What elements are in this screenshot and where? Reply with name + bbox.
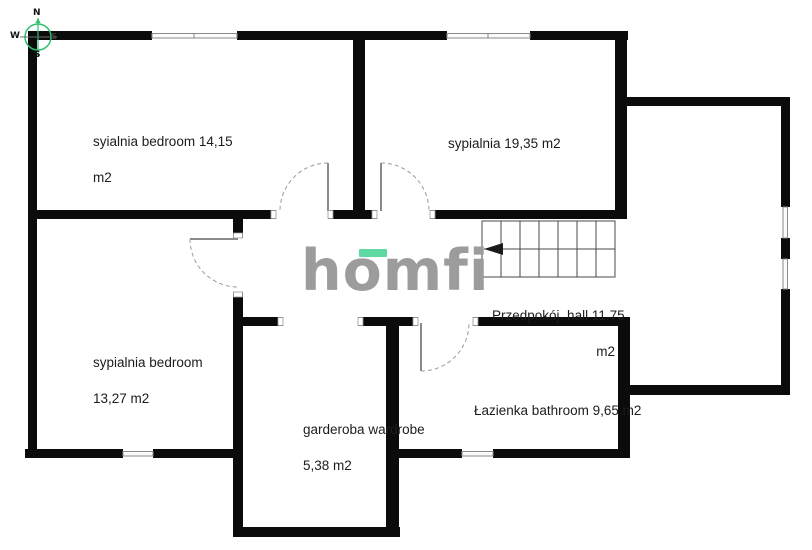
logo-text-post: mfi bbox=[383, 238, 490, 304]
room-area: m2 bbox=[93, 170, 112, 185]
door-jamb bbox=[234, 292, 243, 297]
wall bbox=[233, 292, 243, 537]
floor-plan: N S W E homfi syialnia bedroom 14,15 m2 … bbox=[0, 0, 812, 550]
room-name: sypialnia bedroom bbox=[93, 355, 203, 370]
wall bbox=[28, 31, 37, 458]
room-area: m2 bbox=[477, 343, 615, 361]
compass-east-label: E bbox=[51, 32, 56, 41]
window bbox=[447, 31, 530, 40]
wall bbox=[781, 238, 790, 259]
window bbox=[781, 259, 790, 289]
logo-text-pre: h bbox=[301, 238, 343, 304]
wall bbox=[781, 97, 790, 207]
window bbox=[462, 449, 493, 458]
door-top-left-bedroom bbox=[280, 163, 328, 211]
homfi-logo: homfi bbox=[301, 240, 501, 306]
wall bbox=[530, 31, 628, 40]
door-bathroom bbox=[421, 323, 469, 371]
stairs bbox=[482, 221, 615, 277]
room-name: Łazienka bathroom 9,65 m2 bbox=[474, 403, 641, 418]
room-label-bedroom-bottom: sypialnia bedroom 13,27 m2 bbox=[78, 336, 203, 426]
room-label-hall: Przedpokój hall 11,75 m2 bbox=[477, 289, 615, 397]
room-name: Przedpokój hall 11,75 bbox=[492, 308, 625, 323]
logo-accent-letter: o bbox=[343, 238, 383, 304]
door-bottom-bedroom bbox=[190, 239, 238, 287]
room-name: sypialnia 19,35 m2 bbox=[448, 136, 561, 151]
door-jamb bbox=[372, 211, 377, 219]
door-jamb bbox=[271, 211, 276, 219]
door-jamb bbox=[234, 233, 243, 238]
wall bbox=[237, 31, 447, 40]
room-label-bedroom-top-mid: sypialnia 19,35 m2 bbox=[433, 117, 561, 171]
wall bbox=[25, 449, 123, 458]
room-label-bedroom-top-left: syialnia bedroom 14,15 m2 bbox=[78, 115, 233, 205]
room-label-bathroom: Łazienka bathroom 9,65 m2 bbox=[459, 384, 641, 438]
room-name: syialnia bedroom 14,15 bbox=[93, 134, 233, 149]
room-area: 5,38 m2 bbox=[303, 458, 352, 473]
door-jamb bbox=[413, 318, 418, 326]
wall bbox=[624, 97, 790, 106]
door-jamb bbox=[358, 318, 363, 326]
window bbox=[152, 31, 237, 40]
room-area: 13,27 m2 bbox=[93, 391, 149, 406]
wall bbox=[233, 527, 400, 537]
logo-accent-bar bbox=[359, 249, 387, 257]
compass-south-label: S bbox=[34, 50, 40, 60]
wall bbox=[430, 210, 627, 219]
window bbox=[123, 449, 153, 458]
wall bbox=[781, 289, 790, 395]
wall bbox=[28, 31, 152, 40]
wall bbox=[353, 31, 365, 219]
door-jamb bbox=[328, 211, 333, 219]
door-jamb bbox=[278, 318, 283, 326]
wall bbox=[618, 385, 790, 395]
wall bbox=[328, 210, 377, 219]
room-label-wardrobe: garderoba wardrobe 5,38 m2 bbox=[288, 403, 425, 493]
compass-west-label: W bbox=[10, 31, 20, 41]
window bbox=[781, 207, 790, 238]
compass-north-label: N bbox=[33, 8, 41, 18]
room-name: garderoba wardrobe bbox=[303, 422, 425, 437]
wall bbox=[615, 31, 627, 219]
door-top-middle-bedroom bbox=[381, 163, 429, 211]
wall bbox=[493, 449, 630, 458]
wall bbox=[153, 449, 237, 458]
door-jamb bbox=[430, 211, 435, 219]
